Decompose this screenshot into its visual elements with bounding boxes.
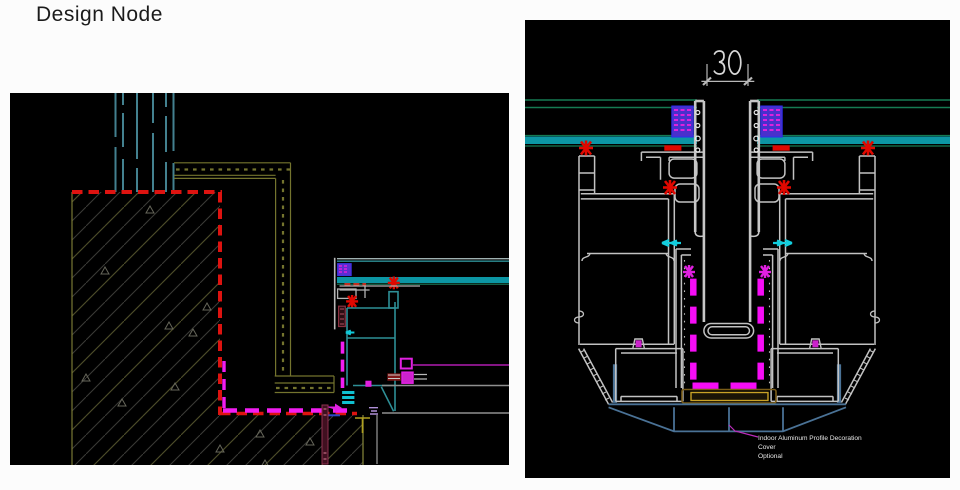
svg-text:Cover: Cover [758, 444, 776, 451]
svg-text:Optional: Optional [758, 453, 783, 460]
svg-text:Indoor Aluminum Profile Decora: Indoor Aluminum Profile Decoration [758, 435, 862, 442]
